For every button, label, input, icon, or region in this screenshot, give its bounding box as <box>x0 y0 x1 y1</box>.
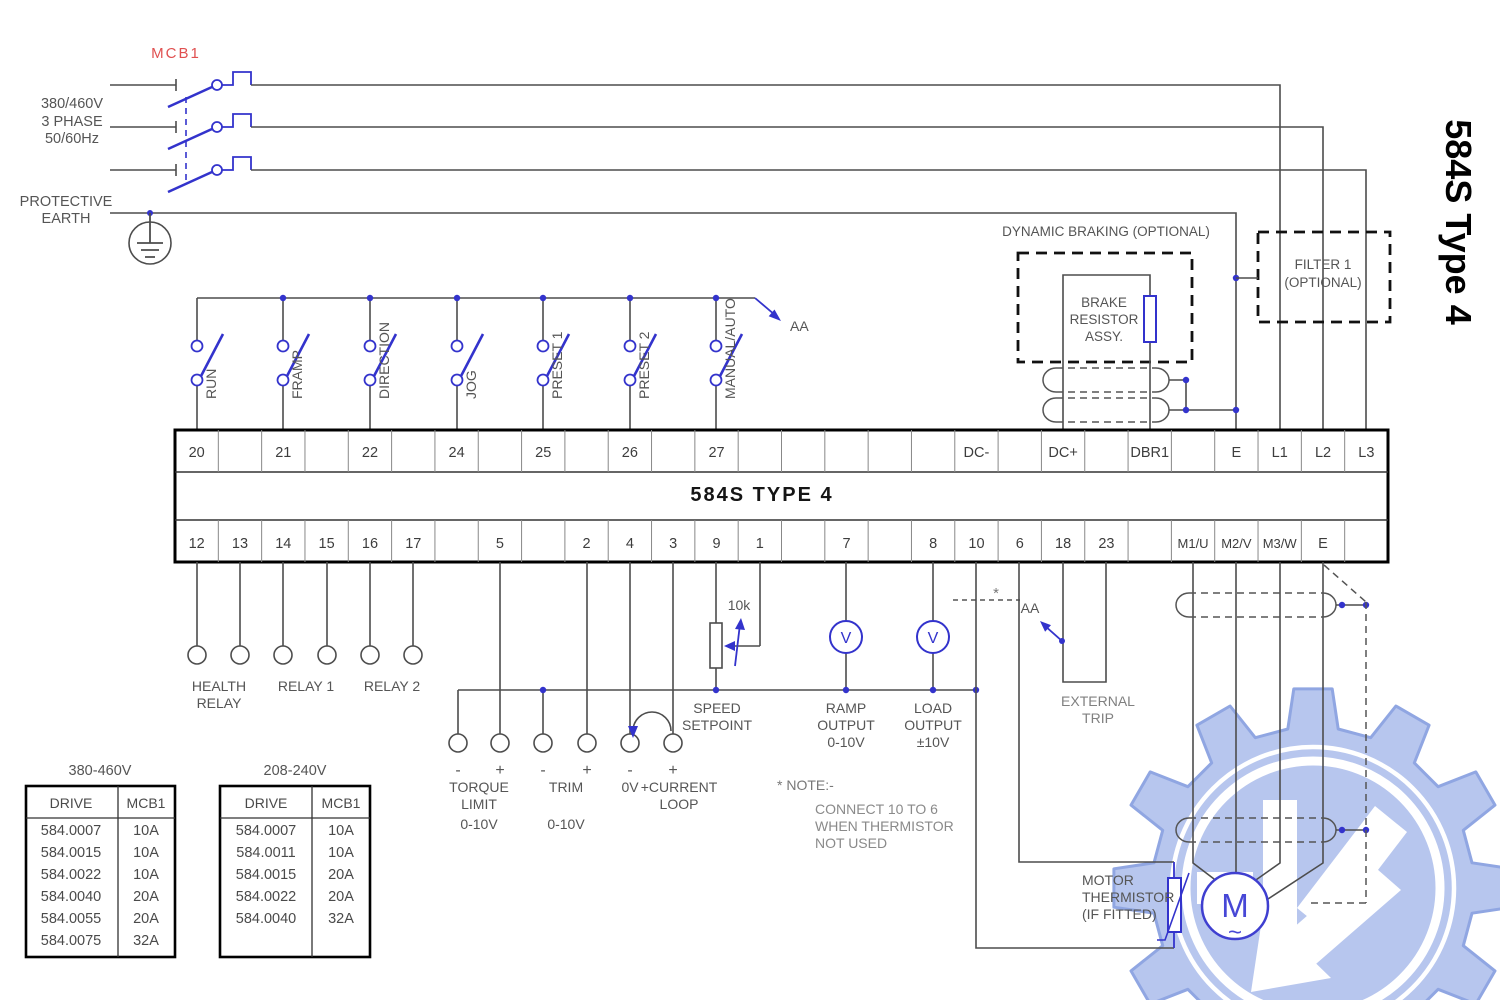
label-analog-trim: TRIM <box>549 779 583 795</box>
table-title-1: 208-240V <box>264 763 327 779</box>
label-analog-speed2: SETPOINT <box>682 717 752 733</box>
terminal-top-25: 25 <box>535 445 551 461</box>
label-thermistor-line3: (IF FITTED) <box>1082 906 1157 922</box>
terminal-top-20: 20 <box>189 445 205 461</box>
table-0-cell: 584.0015 <box>41 845 101 861</box>
table-0-cell: 584.0022 <box>41 867 101 883</box>
table-1-cell: 10A <box>328 823 354 839</box>
earth-symbol-icon <box>137 213 163 257</box>
terminal-bottom-6: 6 <box>1016 536 1024 552</box>
table-0-cell: 584.0040 <box>41 889 101 905</box>
terminal-top-DC+: DC+ <box>1048 445 1077 461</box>
table-0-cell: 584.0075 <box>41 933 101 949</box>
switch-label-6: MANUAL/AUTO <box>722 298 738 399</box>
label-dynamic_braking-assy1: BRAKE <box>1081 295 1127 310</box>
pot-adjust-arrow <box>735 624 740 666</box>
label-supply-phase: 3 PHASE <box>41 114 103 130</box>
trip-aa-dot <box>1059 638 1065 644</box>
terminal-bottom-15: 15 <box>319 536 335 552</box>
analog-wires <box>458 562 673 734</box>
terminal-bottom-8: 8 <box>929 536 937 552</box>
side-title-vertical: 584S Type 4 <box>1438 119 1479 324</box>
label-analog-trim_range: 0-10V <box>547 816 585 832</box>
table-0-header-0: DRIVE <box>50 795 93 811</box>
wiring-diagram-page: MCB1380/460V3 PHASE50/60HzPROTECTIVEEART… <box>0 0 1500 1000</box>
table-1-cell: 584.0022 <box>236 889 296 905</box>
relay-outputs <box>188 562 422 664</box>
label-filter-line1: FILTER 1 <box>1295 257 1352 272</box>
terminal-bottom-7: 7 <box>842 536 850 552</box>
label-dynamic_braking-assy2: RESISTOR <box>1070 312 1139 327</box>
loop-minus-sign: - <box>627 762 632 779</box>
terminal-bottom-1: 1 <box>756 536 764 552</box>
table-1-cell: 584.0015 <box>236 867 296 883</box>
external-trip-wires <box>1063 562 1106 682</box>
pot-adjust-arrowhead-icon <box>735 618 745 630</box>
table-1-cell: 584.0007 <box>236 823 296 839</box>
label-supply-freq: 50/60Hz <box>45 131 99 147</box>
label-thermistor-line1: MOTOR <box>1082 872 1134 888</box>
terminal-bottom-13: 13 <box>232 536 248 552</box>
table-title-0: 380-460V <box>69 763 132 779</box>
terminal-bottom-2: 2 <box>583 536 591 552</box>
brake-resistor-icon <box>1144 296 1156 342</box>
label-supply-earth1: PROTECTIVE <box>20 194 113 210</box>
terminal-bottom-18: 18 <box>1055 536 1071 552</box>
table-0-cell: 10A <box>133 867 159 883</box>
relay-wires <box>197 562 413 646</box>
terminal-top-DBR1: DBR1 <box>1130 445 1169 461</box>
switch-label-5: PRESET 2 <box>636 331 652 399</box>
label-relays-relay2: RELAY 2 <box>364 678 421 694</box>
mcb-blades <box>168 87 212 192</box>
torque-minus-sign: - <box>455 762 460 779</box>
table-0-cell: 10A <box>133 845 159 861</box>
label-analog-ramp_range: 0-10V <box>827 734 865 750</box>
table-1-cell: 10A <box>328 845 354 861</box>
braking-choke-dashes <box>1056 368 1156 422</box>
analog-terminal-circles <box>449 734 682 752</box>
mcb-contact-icon <box>212 122 222 132</box>
aa-label-trip: AA <box>1021 600 1040 616</box>
switch-label-2: DIRECTION <box>376 322 392 399</box>
label-external_trip-line2: TRIP <box>1082 710 1114 726</box>
relay-terminal-circles <box>188 646 422 664</box>
label-analog-speed1: SPEED <box>693 700 740 716</box>
earth-line <box>110 213 1236 430</box>
aa-label-top: AA <box>790 318 809 334</box>
terminal-bottom-4: 4 <box>626 536 634 552</box>
switch-bank <box>192 295 782 430</box>
terminal-top-24: 24 <box>449 445 465 461</box>
label-note-star: * <box>993 585 999 602</box>
switch-label-3: JOG <box>463 370 479 399</box>
terminal-top-22: 22 <box>362 445 378 461</box>
dynamic-braking <box>1018 253 1239 430</box>
ramp-meter-v: V <box>841 630 852 647</box>
terminal-bottom-14: 14 <box>275 536 291 552</box>
mcb-contact-icon <box>212 165 222 175</box>
table-0-cell: 20A <box>133 911 159 927</box>
table-1-header-1: MCB1 <box>322 795 361 811</box>
terminal-bottom-23: 23 <box>1098 536 1114 552</box>
table-1-cell: 32A <box>328 911 354 927</box>
terminal-top-L1: L1 <box>1272 445 1288 461</box>
terminal-top-L2: L2 <box>1315 445 1331 461</box>
label-thermistor-line2: THERMISTOR <box>1082 889 1174 905</box>
current-loop-jumper-arc <box>633 712 671 731</box>
label-analog-pot: 10k <box>728 597 752 613</box>
table-0-cell: 32A <box>133 933 159 949</box>
torque-plus-sign: + <box>495 762 504 779</box>
table-1-cell: 584.0011 <box>236 845 295 861</box>
terminal-bottom-12: 12 <box>189 536 205 552</box>
label-note-line2: WHEN THERMISTOR <box>815 818 954 834</box>
terminal-top-DC-: DC- <box>964 445 990 461</box>
terminal-top-27: 27 <box>708 445 724 461</box>
terminal-top-L3: L3 <box>1358 445 1374 461</box>
label-filter-line2: (OPTIONAL) <box>1284 275 1361 290</box>
load-meter-v: V <box>928 630 939 647</box>
label-note-line3: NOT USED <box>815 835 887 851</box>
table-0-cell: 10A <box>133 823 159 839</box>
label-supply-earth2: EARTH <box>42 211 91 227</box>
speed-pot-icon <box>710 623 722 668</box>
terminal-bottom-M3/W: M3/W <box>1263 536 1298 551</box>
table-0-cell: 584.0055 <box>41 911 101 927</box>
trim-minus-sign: - <box>540 762 545 779</box>
mcb-contact-icon <box>212 80 222 90</box>
table-0-cell: 20A <box>133 889 159 905</box>
trim-plus-sign: + <box>582 762 591 779</box>
mcb-thermal-elements <box>222 72 251 170</box>
terminal-bottom-5: 5 <box>496 536 504 552</box>
label-dynamic_braking-label: DYNAMIC BRAKING (OPTIONAL) <box>1002 224 1210 239</box>
terminal-top-E: E <box>1232 445 1242 461</box>
table-0-header-1: MCB1 <box>127 795 166 811</box>
meter-wires <box>846 562 933 690</box>
label-analog-load_range: ±10V <box>917 734 950 750</box>
label-note-head: * NOTE:- <box>777 777 834 793</box>
terminal-bottom-16: 16 <box>362 536 378 552</box>
table-1-header-0: DRIVE <box>245 795 288 811</box>
schematic-canvas: MCB1380/460V3 PHASE50/60HzPROTECTIVEEART… <box>0 0 1500 1000</box>
label-note-line1: CONNECT 10 TO 6 <box>815 801 938 817</box>
label-analog-loop: LOOP <box>660 796 699 812</box>
loop-plus-sign: + <box>668 762 677 779</box>
phase-line-L2 <box>251 127 1323 430</box>
terminal-bottom-17: 17 <box>405 536 421 552</box>
label-analog-ramp1: RAMP <box>826 700 866 716</box>
table-0-cell: 584.0007 <box>41 823 101 839</box>
terminal-bottom-9: 9 <box>712 536 720 552</box>
phase-line-L1 <box>251 85 1280 430</box>
terminal-bottom-E: E <box>1318 536 1328 552</box>
label-dynamic_braking-assy3: ASSY. <box>1085 329 1123 344</box>
label-supply-mcb: MCB1 <box>151 45 201 62</box>
terminal-top-21: 21 <box>275 445 291 461</box>
braking-earth-links <box>1169 380 1236 410</box>
gear-logo-watermark <box>1114 689 1500 1000</box>
terminal-top-26: 26 <box>622 445 638 461</box>
label-analog-current: +CURRENT <box>641 779 718 795</box>
label-relays-relay1: RELAY 1 <box>278 678 335 694</box>
label-supply-voltage: 380/460V <box>41 96 103 112</box>
terminal-bottom-10: 10 <box>968 536 984 552</box>
switch-label-1: FRAMP <box>289 350 305 399</box>
label-relays-health1: HEALTH <box>192 678 246 694</box>
pot-wiper-arrowhead-icon <box>724 641 735 651</box>
label-relays-health2: RELAY <box>197 695 243 711</box>
phase-line-L3 <box>251 170 1366 430</box>
label-analog-torque2: LIMIT <box>461 796 497 812</box>
terminal-bottom-M1/U: M1/U <box>1178 536 1209 551</box>
switch-label-0: RUN <box>203 369 219 399</box>
label-title_block: 584S TYPE 4 <box>690 484 833 506</box>
switch-label-4: PRESET 1 <box>549 331 565 399</box>
label-analog-load1: LOAD <box>914 700 952 716</box>
label-external_trip-line1: EXTERNAL <box>1061 693 1135 709</box>
label-analog-load2: OUTPUT <box>904 717 962 733</box>
table-1-cell: 20A <box>328 867 354 883</box>
label-analog-torque1: TORQUE <box>449 779 509 795</box>
phase-line-stubs <box>110 85 176 170</box>
motor-wave-label: ~ <box>1228 919 1242 946</box>
label-analog-ramp2: OUTPUT <box>817 717 875 733</box>
table-1-cell: 584.0040 <box>236 911 296 927</box>
table-1-cell: 20A <box>328 889 354 905</box>
terminal-bottom-M2/V: M2/V <box>1221 536 1252 551</box>
label-analog-torque_range: 0-10V <box>460 816 498 832</box>
terminal-bottom-3: 3 <box>669 536 677 552</box>
label-analog-zero_volt: 0V <box>621 779 639 795</box>
